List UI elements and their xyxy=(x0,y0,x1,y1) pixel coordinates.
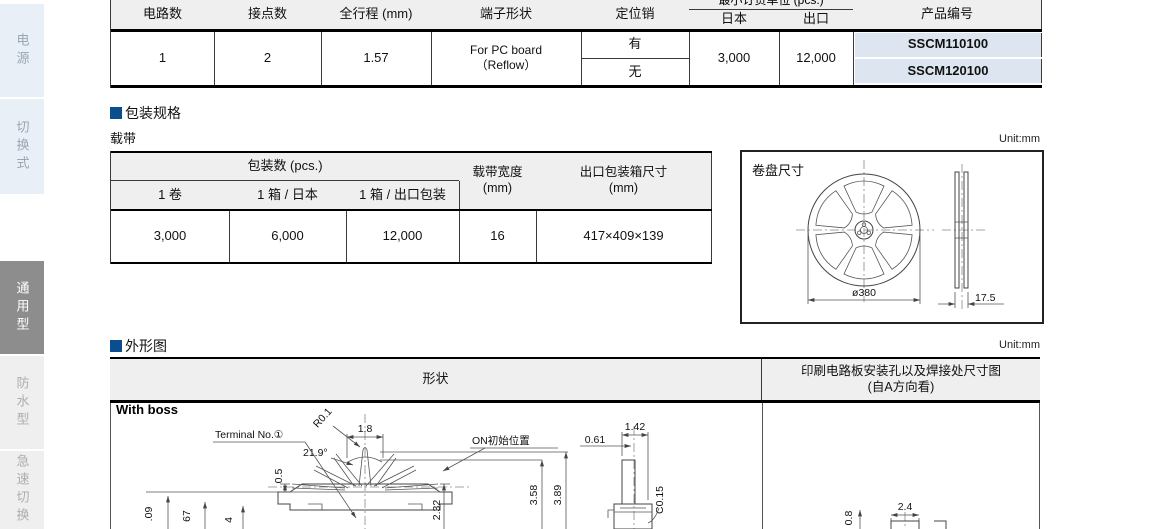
dim-height-body: 2.32 xyxy=(431,500,443,521)
spec-part-with-pin: SSCM110100 xyxy=(855,33,1042,57)
spec-col-japan: 日本 xyxy=(689,10,780,29)
spec-travel-value: 1.57 xyxy=(321,32,432,86)
spec-table: 电路数 接点数 全行程 (mm) 端子形状 定位销 最小订货单位 (pcs.) … xyxy=(110,0,1042,88)
packaging-tape-width-value: 16 xyxy=(459,211,537,262)
reel-unit-label: Unit:mm xyxy=(840,133,1040,145)
dim-chamfer: C0.15 xyxy=(654,486,666,514)
packaging-qty-box-japan: 6,000 xyxy=(229,211,347,262)
packaging-table: 包装数 (pcs.) 载带宽度 (mm) 出口包装箱尺寸 (mm) 1 卷 1 … xyxy=(110,151,712,264)
shape-drawing: 1.8 R0.1 21.9° Terminal No.① ON初始位置 3.58… xyxy=(140,400,760,529)
packaging-bottom-border xyxy=(111,262,712,264)
section-bullet-icon xyxy=(110,340,122,352)
packaging-col-reel: 1 卷 xyxy=(111,181,230,209)
dim-left-frag2: 67 xyxy=(181,510,193,522)
sidebar-tab-toggle[interactable]: 切换式 xyxy=(0,99,44,194)
packaging-col-tape-width: 载带宽度 (mm) xyxy=(459,153,537,209)
dim-pad-height: 0.8 xyxy=(843,511,855,526)
on-position-label: ON初始位置 xyxy=(472,434,530,447)
sidebar-tab-general[interactable]: 通用型 xyxy=(0,261,44,354)
sidebar-tab-power[interactable]: 电源 xyxy=(0,4,44,97)
spec-terminal-value: For PC board （Reflow） xyxy=(431,32,582,86)
pcb-pad-drawing: 2.4 0.8 xyxy=(766,400,1036,529)
packaging-section-title: 包装规格 xyxy=(110,103,181,123)
spec-bottom-border xyxy=(111,85,1042,88)
spec-col-export: 出口 xyxy=(779,10,854,29)
outline-body-divider xyxy=(762,403,763,529)
spec-col-pin: 定位销 xyxy=(581,0,690,29)
dim-top-width: 1.8 xyxy=(358,423,373,435)
outline-body-right-border xyxy=(1039,403,1040,529)
terminal-label: Terminal No.① xyxy=(215,429,283,441)
outline-unit-label: Unit:mm xyxy=(840,339,1040,351)
sidebar-tab-waterproof[interactable]: 防水型 xyxy=(0,356,44,449)
spec-moq-export: 12,000 xyxy=(779,32,854,86)
spec-col-travel: 全行程 (mm) xyxy=(321,0,432,29)
dim-left-frag3: 4 xyxy=(223,517,235,523)
spec-col-part: 产品编号 xyxy=(853,0,1042,29)
dim-radius: R0.1 xyxy=(311,406,335,431)
spec-moq-japan: 3,000 xyxy=(689,32,780,86)
packaging-col-qty: 包装数 (pcs.) xyxy=(111,153,460,181)
catalog-page: 电源 切换式 通用型 防水型 急速切换 电路数 接点数 全行程 (mm) 端子形… xyxy=(0,0,1150,529)
reel-width-dim: 17.5 xyxy=(975,292,996,304)
spec-col-contacts: 接点数 xyxy=(214,0,322,29)
dim-height-total: 3.89 xyxy=(552,485,564,506)
packaging-subtitle: 载带 xyxy=(110,128,136,147)
reel-diameter-dim: ø380 xyxy=(852,287,876,299)
spec-col-moq: 最小订货单位 (pcs.) xyxy=(689,0,854,10)
sidebar-tab-quick[interactable]: 急速切换 xyxy=(0,451,44,529)
dim-height-on: 3.58 xyxy=(528,485,540,506)
reel-title: 卷盘尺寸 xyxy=(752,160,804,179)
spec-pin-no: 无 xyxy=(581,59,690,86)
packaging-col-box-export: 1 箱 / 出口包装 xyxy=(346,181,460,209)
spec-contacts-value: 2 xyxy=(214,32,322,86)
dim-pad-pitch: 2.4 xyxy=(898,501,913,513)
spec-part-without-pin: SSCM120100 xyxy=(855,59,1042,83)
section-bullet-icon xyxy=(110,107,122,119)
reel-diagram-panel: 卷盘尺寸 ø380 xyxy=(740,150,1044,324)
spec-col-terminal: 端子形状 xyxy=(431,0,582,29)
outline-body-left-border xyxy=(110,403,111,529)
spec-circuits-value: 1 xyxy=(111,32,215,86)
outline-col-pcb: 印刷电路板安装孔以及焊接处尺寸图 (自A方向看) xyxy=(762,359,1040,400)
spec-col-circuits: 电路数 xyxy=(111,0,215,29)
outline-section-title: 外形图 xyxy=(110,336,167,356)
dim-side-offset: 0.61 xyxy=(585,434,606,446)
packaging-carton-size-value: 417×409×139 xyxy=(536,211,712,262)
packaging-qty-box-export: 12,000 xyxy=(346,211,460,262)
dim-offset: 0.5 xyxy=(273,469,285,484)
spec-pin-yes: 有 xyxy=(581,32,690,59)
dim-left-frag1: .09 xyxy=(143,507,155,522)
outline-col-shape: 形状 xyxy=(110,359,762,400)
dim-side-width: 1.42 xyxy=(625,421,646,433)
packaging-qty-reel: 3,000 xyxy=(111,211,230,262)
packaging-col-carton: 出口包装箱尺寸 (mm) xyxy=(536,153,712,209)
packaging-col-box-japan: 1 箱 / 日本 xyxy=(229,181,347,209)
